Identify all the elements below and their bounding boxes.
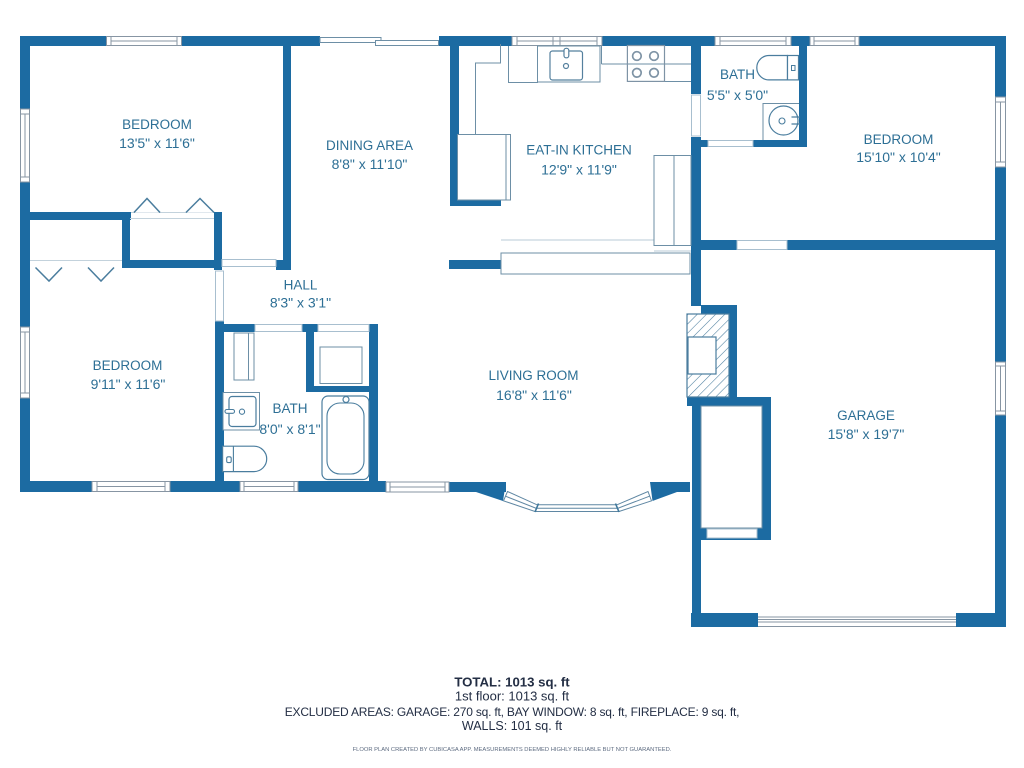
svg-text:TOTAL: 1013 sq. ft: TOTAL: 1013 sq. ft: [454, 675, 570, 690]
svg-text:BEDROOM: BEDROOM: [122, 117, 192, 132]
svg-text:GARAGE: GARAGE: [837, 408, 895, 423]
svg-text:5'5" x 5'0": 5'5" x 5'0": [707, 87, 768, 103]
svg-text:BEDROOM: BEDROOM: [864, 132, 934, 147]
svg-text:8'0" x 8'1": 8'0" x 8'1": [259, 421, 320, 437]
svg-text:16'8" x 11'6": 16'8" x 11'6": [496, 387, 572, 403]
svg-text:15'8" x 19'7": 15'8" x 19'7": [828, 426, 905, 442]
svg-text:9'11" x 11'6": 9'11" x 11'6": [91, 376, 166, 392]
svg-text:EAT-IN KITCHEN: EAT-IN KITCHEN: [526, 143, 632, 158]
svg-text:15'10" x 10'4": 15'10" x 10'4": [856, 149, 941, 165]
svg-text:EXCLUDED AREAS: GARAGE: 270 sq: EXCLUDED AREAS: GARAGE: 270 sq. ft, BAY …: [285, 705, 740, 719]
svg-text:BATH: BATH: [720, 67, 755, 82]
svg-text:FLOOR PLAN CREATED BY CUBICASA: FLOOR PLAN CREATED BY CUBICASA APP. MEAS…: [353, 747, 672, 753]
svg-text:DINING AREA: DINING AREA: [326, 138, 413, 153]
svg-text:8'8" x 11'10": 8'8" x 11'10": [332, 156, 408, 172]
svg-text:12'9" x 11'9": 12'9" x 11'9": [541, 162, 617, 178]
svg-text:BEDROOM: BEDROOM: [93, 358, 163, 373]
svg-text:13'5" x 11'6": 13'5" x 11'6": [119, 135, 195, 151]
svg-text:LIVING ROOM: LIVING ROOM: [488, 368, 578, 383]
svg-text:1st floor: 1013 sq. ft: 1st floor: 1013 sq. ft: [455, 689, 570, 704]
svg-text:WALLS: 101 sq. ft: WALLS: 101 sq. ft: [462, 719, 563, 733]
svg-text:8'3" x 3'1": 8'3" x 3'1": [270, 295, 331, 311]
svg-text:HALL: HALL: [284, 278, 318, 293]
svg-text:BATH: BATH: [272, 401, 307, 416]
